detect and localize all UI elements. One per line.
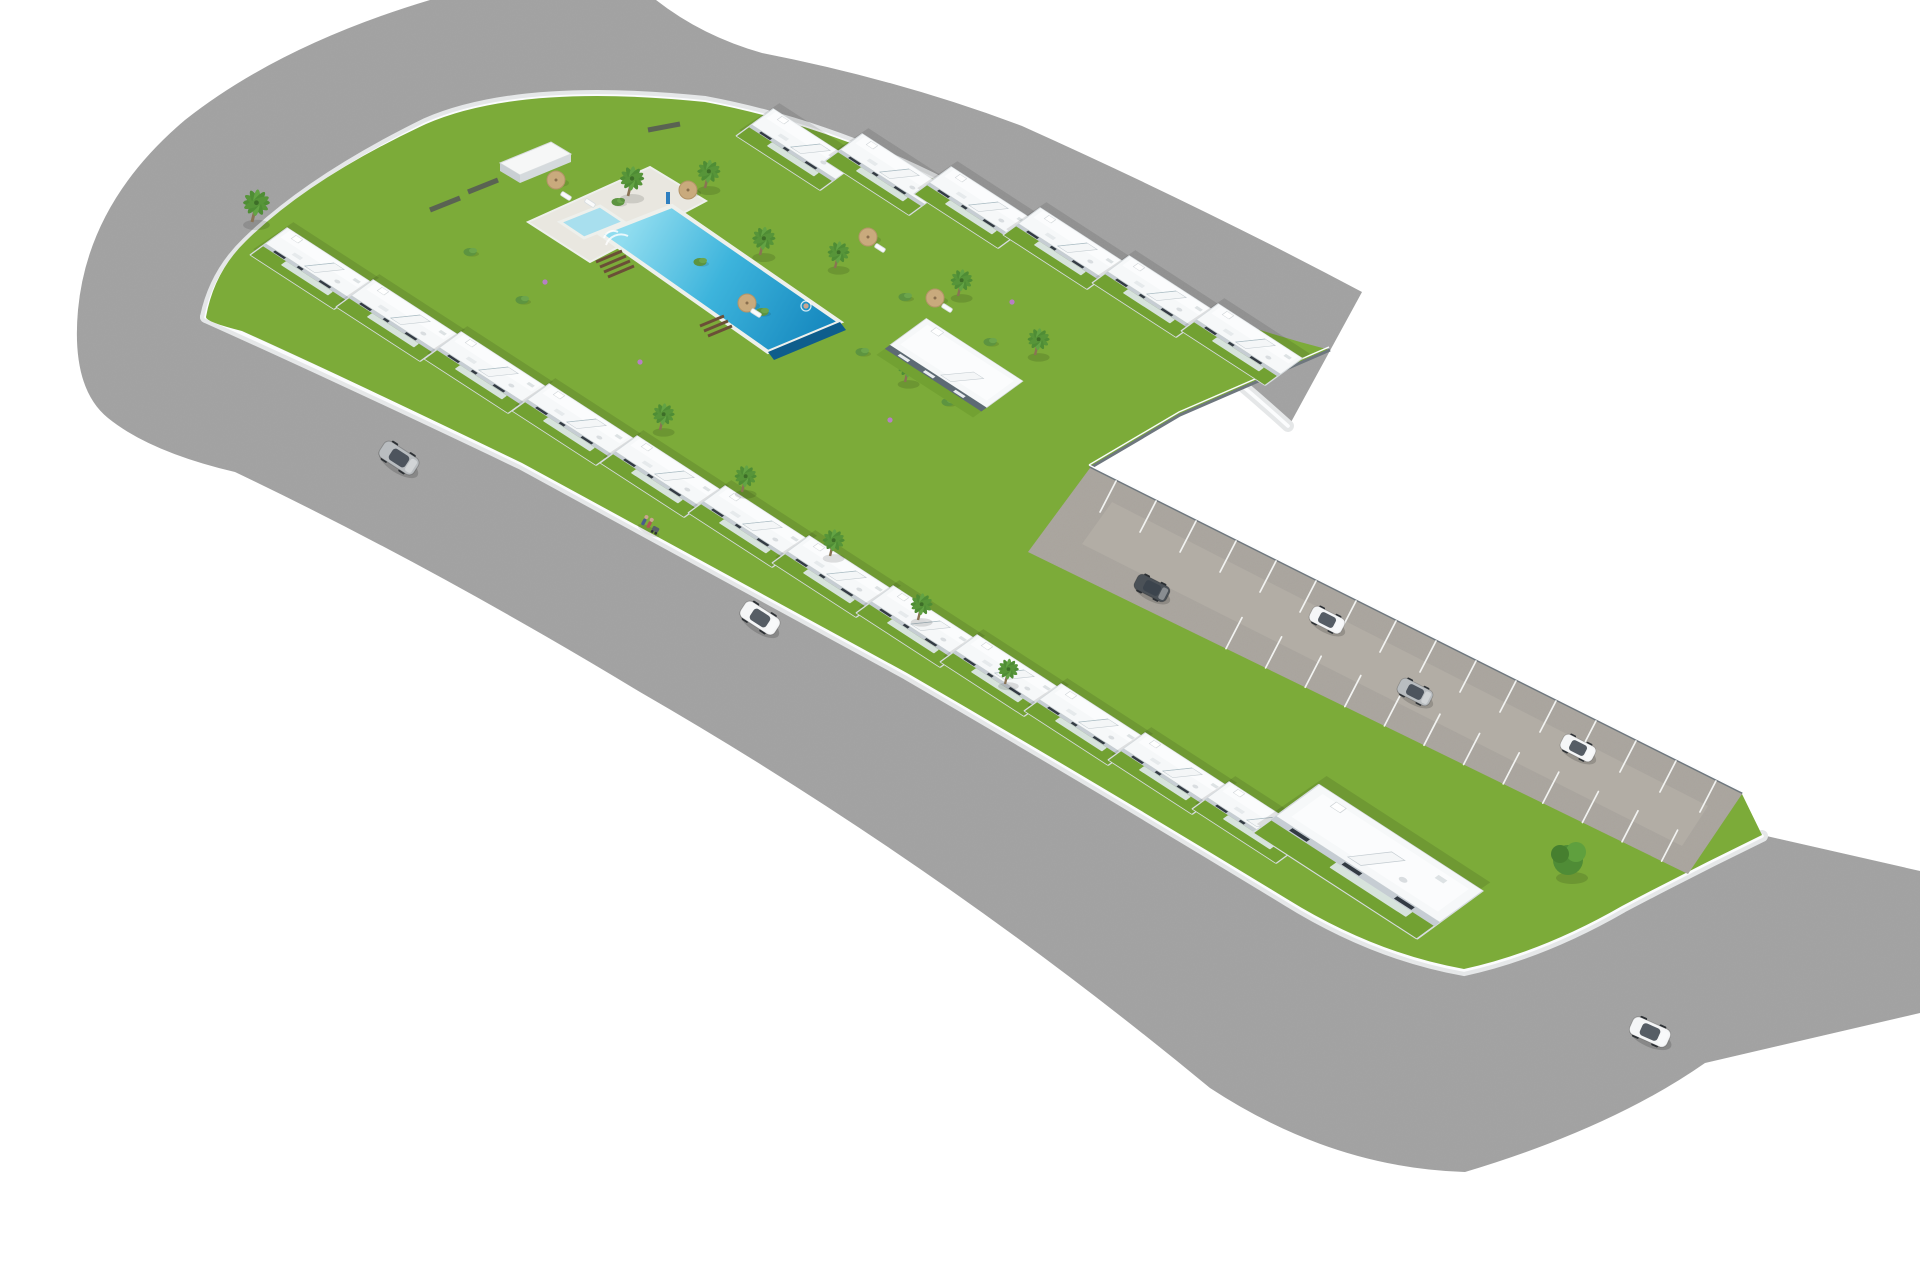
swimmer [803,303,808,308]
pool-shower [666,192,670,204]
flowering-shrub [1009,299,1014,304]
leafy-tree [1551,842,1588,884]
flowering-shrub [887,417,892,422]
flowering-shrub [637,359,642,364]
flowering-shrub [542,279,547,284]
render-canvas [0,0,1920,1280]
site-plan-render [0,0,1920,1280]
